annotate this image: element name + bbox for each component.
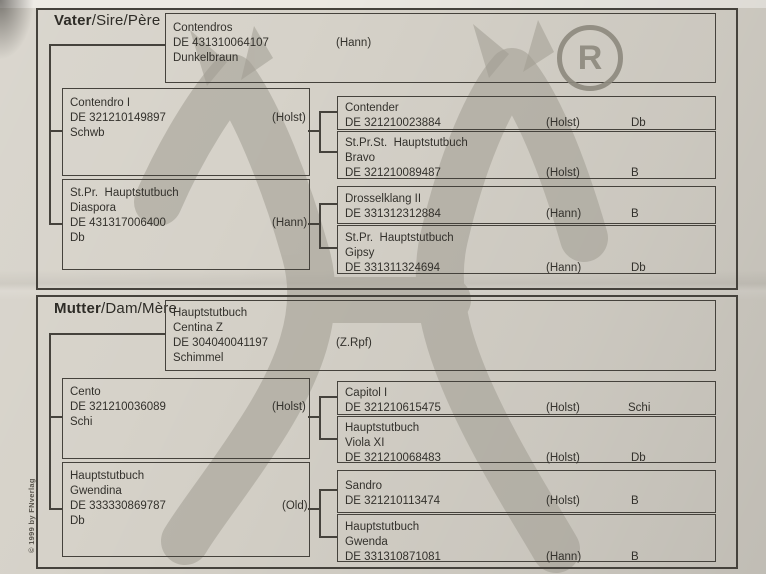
color-code: Db xyxy=(631,451,646,466)
horse-name: Viola XI xyxy=(345,436,711,451)
studbook-title: St.Pr. Hauptstutbuch xyxy=(345,231,711,246)
studbook-region: (Hann) xyxy=(546,207,581,222)
horse-id: DE 321210068483 xyxy=(345,451,711,466)
color-code: B xyxy=(631,550,639,565)
horse-name: Contendro I xyxy=(70,96,305,111)
horse-text-block: Contendros DE 431310064107 Dunkelbraun xyxy=(173,21,711,66)
horse-text-block: Hauptstutbuch Viola XI DE 321210068483 xyxy=(345,421,711,466)
pedigree-box-dam-dam: Hauptstutbuch Gwendina DE 333330869787 D… xyxy=(62,462,310,557)
connector-line xyxy=(319,438,337,440)
horse-color: Schimmel xyxy=(173,351,711,366)
connector-line xyxy=(49,44,165,46)
connector-line xyxy=(319,151,337,153)
studbook-title: Hauptstutbuch xyxy=(345,421,711,436)
studbook-region: (Z.Rpf) xyxy=(336,336,372,351)
connector-line xyxy=(319,489,337,491)
horse-id: DE 331311324694 xyxy=(345,261,711,276)
horse-name: Bravo xyxy=(345,151,711,166)
pedigree-box-sire: Contendros DE 431310064107 Dunkelbraun (… xyxy=(165,13,716,83)
horse-name: Gwenda xyxy=(345,535,711,550)
horse-name: Gwendina xyxy=(70,484,305,499)
color-code: Schi xyxy=(628,401,650,416)
connector-line xyxy=(49,508,62,510)
pedigree-box-grandparent: Capitol I DE 321210615475 (Holst) Schi xyxy=(337,381,716,415)
sire-label-bold: Vater xyxy=(54,12,92,29)
pedigree-box-grandparent: Hauptstutbuch Gwenda DE 331310871081 (Ha… xyxy=(337,514,716,562)
horse-id: DE 321210023884 xyxy=(345,116,711,131)
connector-line xyxy=(319,489,321,538)
connector-line xyxy=(49,44,51,225)
connector-line xyxy=(49,333,51,510)
connector-line xyxy=(319,396,321,440)
horse-name: Diaspora xyxy=(70,201,305,216)
dam-section-label: Mutter/Dam/Mère xyxy=(54,300,177,317)
horse-name: Sandro xyxy=(345,479,711,494)
pedigree-box-sire-sire: Contendro I DE 321210149897 Schwb (Holst… xyxy=(62,88,310,176)
registered-letter: R xyxy=(578,41,603,75)
studbook-region: (Holst) xyxy=(546,166,580,181)
studbook-title: St.Pr.St. Hauptstutbuch xyxy=(345,136,711,151)
horse-name: Centina Z xyxy=(173,321,711,336)
horse-color: Schi xyxy=(70,415,305,430)
sire-section-label: Vater/Sire/Père xyxy=(54,12,160,29)
horse-id: DE 321210036089 xyxy=(70,400,305,415)
studbook-region: (Holst) xyxy=(546,116,580,131)
connector-line xyxy=(49,416,62,418)
studbook-title: Hauptstutbuch xyxy=(70,469,305,484)
studbook-region: (Hann) xyxy=(546,550,581,565)
dam-label-bold: Mutter xyxy=(54,300,101,317)
horse-id: DE 304040041197 xyxy=(173,336,711,351)
studbook-title: St.Pr. Hauptstutbuch xyxy=(70,186,305,201)
connector-line xyxy=(319,247,337,249)
pedigree-box-grandparent: Hauptstutbuch Viola XI DE 321210068483 (… xyxy=(337,416,716,463)
horse-text-block: Hauptstutbuch Gwenda DE 331310871081 xyxy=(345,520,711,565)
horse-name: Contendros xyxy=(173,21,711,36)
pedigree-box-dam-sire: Cento DE 321210036089 Schi (Holst) xyxy=(62,378,310,459)
studbook-region: (Holst) xyxy=(546,494,580,509)
horse-text-block: Cento DE 321210036089 Schi xyxy=(70,385,305,430)
horse-id: DE 431310064107 xyxy=(173,36,711,51)
registered-trademark-icon: R xyxy=(557,25,623,91)
pedigree-document-photo: R Vater/Sire/Père Contendros DE 43131006… xyxy=(0,0,766,574)
sire-label-rest: /Sire/Père xyxy=(92,12,161,29)
studbook-region: (Old) xyxy=(282,499,308,514)
studbook-region: (Holst) xyxy=(546,401,580,416)
pedigree-box-grandparent: St.Pr.St. Hauptstutbuch Bravo DE 3212100… xyxy=(337,131,716,179)
horse-name: Cento xyxy=(70,385,305,400)
connector-line xyxy=(49,130,62,132)
studbook-title: Hauptstutbuch xyxy=(173,306,711,321)
horse-id: DE 331310871081 xyxy=(345,550,711,565)
horse-color: Schwb xyxy=(70,126,305,141)
connector-line xyxy=(49,223,62,225)
studbook-region: (Hann) xyxy=(272,216,307,231)
studbook-region: (Holst) xyxy=(272,111,306,126)
horse-id: DE 321210149897 xyxy=(70,111,305,126)
horse-text-block: St.Pr.St. Hauptstutbuch Bravo DE 3212100… xyxy=(345,136,711,181)
horse-color: Db xyxy=(70,514,305,529)
horse-text-block: Contender DE 321210023884 xyxy=(345,101,711,131)
connector-line xyxy=(319,203,337,205)
studbook-region: (Holst) xyxy=(272,400,306,415)
studbook-title: Hauptstutbuch xyxy=(345,520,711,535)
pedigree-box-grandparent: Sandro DE 321210113474 (Holst) B xyxy=(337,470,716,513)
horse-text-block: St.Pr. Hauptstutbuch Gipsy DE 3313113246… xyxy=(345,231,711,276)
color-code: B xyxy=(631,494,639,509)
horse-name: Drosselklang II xyxy=(345,192,711,207)
horse-text-block: Hauptstutbuch Centina Z DE 304040041197 … xyxy=(173,306,711,366)
color-code: Db xyxy=(631,116,646,131)
studbook-region: (Hann) xyxy=(546,261,581,276)
horse-color: Db xyxy=(70,231,305,246)
horse-name: Gipsy xyxy=(345,246,711,261)
horse-name: Capitol I xyxy=(345,386,711,401)
connector-line xyxy=(319,203,321,249)
pedigree-box-sire-dam: St.Pr. Hauptstutbuch Diaspora DE 4313170… xyxy=(62,179,310,270)
horse-text-block: Capitol I DE 321210615475 xyxy=(345,386,711,416)
horse-id: DE 321210089487 xyxy=(345,166,711,181)
connector-line xyxy=(319,536,337,538)
pedigree-box-dam: Hauptstutbuch Centina Z DE 304040041197 … xyxy=(165,300,716,371)
horse-text-block: St.Pr. Hauptstutbuch Diaspora DE 4313170… xyxy=(70,186,305,246)
horse-text-block: Sandro DE 321210113474 xyxy=(345,479,711,509)
connector-line xyxy=(319,396,337,398)
pedigree-box-grandparent: Drosselklang II DE 331312312884 (Hann) B xyxy=(337,186,716,224)
horse-text-block: Drosselklang II DE 331312312884 xyxy=(345,192,711,222)
horse-color: Dunkelbraun xyxy=(173,51,711,66)
copyright-note: © 1999 by FNverlag xyxy=(27,478,36,553)
horse-id: DE 333330869787 xyxy=(70,499,305,514)
horse-id: DE 321210113474 xyxy=(345,494,711,509)
connector-line xyxy=(319,111,337,113)
horse-id: DE 321210615475 xyxy=(345,401,711,416)
horse-id: DE 431317006400 xyxy=(70,216,305,231)
connector-line xyxy=(319,111,321,153)
pedigree-box-grandparent: St.Pr. Hauptstutbuch Gipsy DE 3313113246… xyxy=(337,225,716,274)
pedigree-box-grandparent: Contender DE 321210023884 (Holst) Db xyxy=(337,96,716,130)
color-code: Db xyxy=(631,261,646,276)
color-code: B xyxy=(631,166,639,181)
horse-text-block: Hauptstutbuch Gwendina DE 333330869787 D… xyxy=(70,469,305,529)
studbook-region: (Hann) xyxy=(336,36,371,51)
horse-text-block: Contendro I DE 321210149897 Schwb xyxy=(70,96,305,141)
connector-line xyxy=(49,333,165,335)
horse-id: DE 331312312884 xyxy=(345,207,711,222)
horse-name: Contender xyxy=(345,101,711,116)
studbook-region: (Holst) xyxy=(546,451,580,466)
color-code: B xyxy=(631,207,639,222)
